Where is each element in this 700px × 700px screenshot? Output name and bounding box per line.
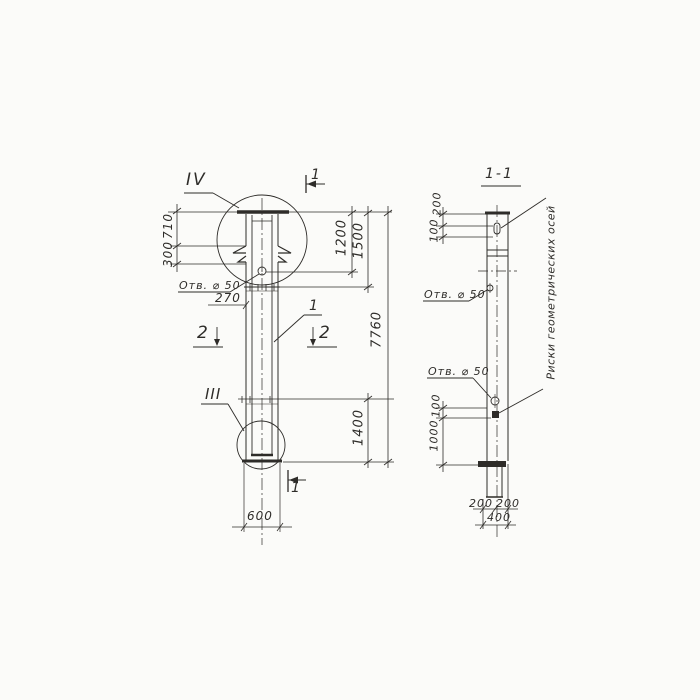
cut-1-bottom-label: 1 bbox=[291, 481, 301, 495]
dim-100-top-label: 100 bbox=[429, 211, 440, 251]
bottom-band bbox=[478, 461, 506, 467]
axis-note-label: Риски геометрических осей bbox=[546, 188, 557, 398]
detail-III-label: III bbox=[205, 387, 221, 402]
right-view-callouts bbox=[423, 198, 546, 413]
dim-270-label: 270 bbox=[215, 292, 241, 304]
part-1-label: 1 bbox=[309, 299, 319, 313]
dim-200-bottom-left-label: 200 bbox=[469, 498, 493, 509]
dim-200-bottom-right-label: 200 bbox=[496, 498, 520, 509]
dim-400-label: 400 bbox=[487, 512, 511, 523]
dim-7760-label: 7760 bbox=[371, 305, 384, 355]
hole-label-right-lower: Отв. ⌀ 50 bbox=[428, 366, 490, 377]
dim-600-label: 600 bbox=[247, 510, 273, 522]
dim-1400-label: 1400 bbox=[353, 403, 366, 453]
dim-300-label: 300 bbox=[162, 234, 174, 274]
hole-label-right-upper: Отв. ⌀ 50 bbox=[424, 289, 486, 300]
hole-label-left: Отв. ⌀ 50 bbox=[179, 280, 241, 291]
technical-drawing-lines bbox=[0, 0, 700, 700]
axis-mark-square bbox=[492, 411, 499, 418]
drawing-sheet: IV 1 2 2 1 III 1 Отв. ⌀ 50 270 710 300 1… bbox=[0, 0, 700, 700]
dim-1200-label: 1200 bbox=[336, 213, 349, 263]
right-view-column bbox=[478, 186, 521, 540]
cut-1-top-label: 1 bbox=[311, 168, 321, 182]
detail-IV-label: IV bbox=[186, 172, 207, 189]
dim-1000-label: 1000 bbox=[429, 411, 440, 461]
cut-2-right-label: 2 bbox=[319, 325, 332, 342]
section-1-1-title: 1-1 bbox=[485, 167, 514, 181]
dim-1500-label: 1500 bbox=[353, 216, 366, 266]
cut-2-left-label: 2 bbox=[197, 325, 210, 342]
